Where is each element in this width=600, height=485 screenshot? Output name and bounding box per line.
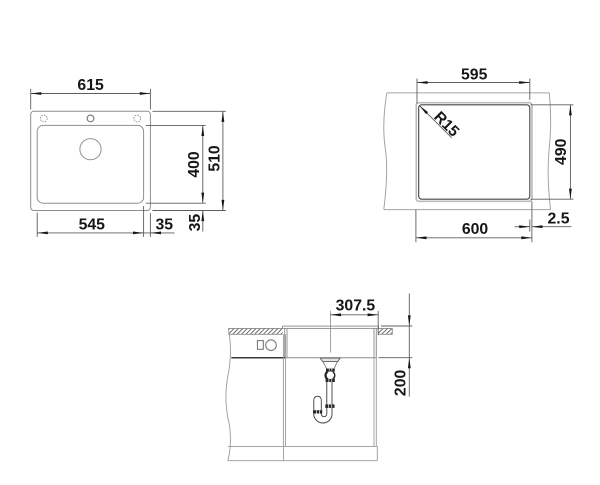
svg-text:200: 200 xyxy=(393,370,410,397)
svg-text:307.5: 307.5 xyxy=(336,297,376,314)
svg-text:2.5: 2.5 xyxy=(548,210,570,227)
svg-text:595: 595 xyxy=(461,66,488,83)
svg-text:600: 600 xyxy=(462,221,489,238)
svg-text:35: 35 xyxy=(156,217,174,234)
svg-text:35: 35 xyxy=(187,214,204,232)
svg-text:490: 490 xyxy=(553,138,570,165)
svg-text:545: 545 xyxy=(79,217,106,234)
svg-text:400: 400 xyxy=(186,151,203,178)
svg-text:615: 615 xyxy=(77,77,104,94)
svg-text:510: 510 xyxy=(206,145,223,172)
